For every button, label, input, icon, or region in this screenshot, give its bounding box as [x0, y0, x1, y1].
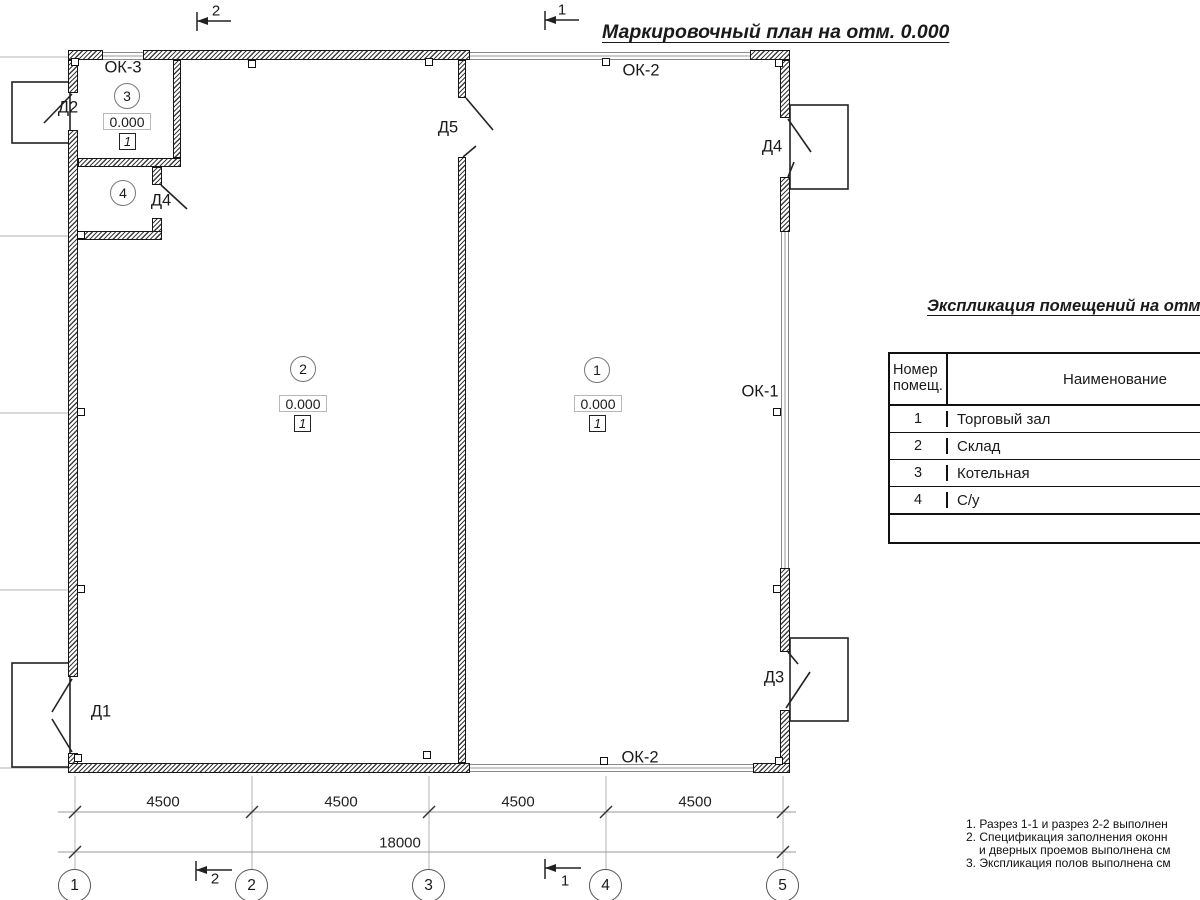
drawing-sheet: Маркировочный план на отм. 0.000 Эксплик… — [0, 0, 1200, 900]
schedule-row: 2 Склад — [890, 433, 1200, 460]
section-number-top-right: 1 — [558, 2, 566, 19]
wall-right-a — [780, 60, 790, 118]
dimension-label: 4500 — [501, 794, 534, 811]
grid-marker — [773, 585, 781, 593]
note-line-2-continued: и дверных проемов выполнена см — [979, 843, 1170, 857]
wall-top-main — [143, 50, 470, 60]
window-label-ok2-bottom: ОК-2 — [621, 749, 658, 768]
grid-marker — [600, 757, 608, 765]
room-number-3: 3 — [114, 83, 140, 109]
door-label-d4-entrance: Д4 — [762, 138, 782, 157]
schedule-row-name: Склад — [948, 438, 1200, 455]
section-number-bottom-right: 1 — [561, 873, 569, 890]
room-schedule-table: Номер помещ. Наименование 1 Торговый зал… — [888, 352, 1200, 544]
wall-right-c — [780, 568, 790, 652]
axis-bubble-2: 2 — [235, 869, 268, 900]
schedule-row-name: С/у — [948, 492, 1200, 509]
door-label-d2: Д2 — [58, 99, 78, 118]
floor-type-mark-room1: 1 — [589, 415, 606, 432]
axis-bubble-3: 3 — [412, 869, 445, 900]
section-number-bottom-left: 2 — [211, 871, 219, 888]
partition-room3-bottom — [78, 158, 181, 167]
window-label-ok1: ОК-1 — [741, 383, 778, 402]
plan-title: Маркировочный план на отм. 0.000 — [602, 21, 949, 44]
dimension-label: 4500 — [146, 794, 179, 811]
room-number-1: 1 — [584, 357, 610, 383]
porch-outlines — [12, 82, 848, 767]
wall-left-main — [68, 130, 78, 677]
grid-marker — [248, 60, 256, 68]
partition-room3-right — [173, 60, 181, 158]
section-mark-arrows — [196, 11, 581, 881]
grid-marker — [71, 58, 79, 66]
door-leaf-d5-lower — [463, 146, 476, 157]
door-label-d5: Д5 — [438, 119, 458, 138]
room-number-4: 4 — [110, 180, 136, 206]
partition-main-top — [458, 60, 466, 98]
grid-marker — [775, 59, 783, 67]
schedule-row-name: Котельная — [948, 465, 1200, 482]
door-leaf-d1-upper — [52, 679, 72, 712]
window-label-ok3: ОК-3 — [104, 59, 141, 78]
dimension-label: 4500 — [678, 794, 711, 811]
note-line-1: 1. Разрез 1-1 и разрез 2-2 выполнен — [966, 817, 1168, 831]
schedule-header-row: Номер помещ. Наименование — [890, 354, 1200, 406]
grid-marker — [77, 231, 85, 239]
wall-top-right-pier — [750, 50, 790, 60]
grid-marker — [77, 408, 85, 416]
door-label-d1: Д1 — [91, 703, 111, 722]
schedule-row: 1 Торговый зал — [890, 406, 1200, 433]
grid-marker — [74, 754, 82, 762]
schedule-col-number-header-line1: Номер — [893, 363, 946, 379]
schedule-col-number-header: Номер помещ. — [890, 354, 948, 404]
axis-extension-lines — [75, 776, 783, 871]
door-leaf-d5-upper — [466, 98, 493, 130]
window-label-ok2-top: ОК-2 — [622, 62, 659, 81]
axis-bubble-5: 5 — [766, 869, 799, 900]
schedule-title: Экспликация помещений на отм. 0.000 — [927, 297, 1200, 316]
note-line-2: 2. Спецификация заполнения оконн — [966, 830, 1167, 844]
grid-marker — [602, 58, 610, 66]
grid-axis-stubs — [0, 57, 68, 768]
grid-marker — [773, 408, 781, 416]
floor-type-mark-room2: 1 — [294, 415, 311, 432]
grid-marker — [775, 757, 783, 765]
wall-right-b — [780, 177, 790, 232]
elevation-mark-room3: 0.000 — [103, 113, 151, 130]
room-number-2: 2 — [290, 356, 316, 382]
dimension-lines — [58, 812, 796, 852]
schedule-col-name-header: Наименование — [948, 354, 1200, 404]
grid-marker — [77, 585, 85, 593]
elevation-mark-room1: 0.000 — [574, 395, 622, 412]
schedule-row-number: 4 — [890, 492, 948, 508]
axis-bubble-1: 1 — [58, 869, 91, 900]
door-leaf-d4-lower — [788, 162, 794, 177]
section-number-top-left: 2 — [212, 3, 220, 20]
schedule-empty-row — [890, 515, 1200, 542]
wall-bottom-right-pier — [753, 763, 790, 773]
window-band-ok2-top — [470, 52, 750, 60]
schedule-row-number: 3 — [890, 465, 948, 481]
schedule-row-name: Торговый зал — [948, 411, 1200, 428]
grid-marker — [425, 58, 433, 66]
elevation-mark-room2: 0.000 — [279, 395, 327, 412]
wall-bottom-left — [68, 763, 470, 773]
schedule-row-number: 2 — [890, 438, 948, 454]
door-leaf-d4-upper — [788, 119, 811, 152]
grid-marker — [423, 751, 431, 759]
partition-wc-jamb-top — [152, 167, 162, 185]
door-label-d4-wc: Д4 — [151, 192, 171, 211]
dimension-total-label: 18000 — [379, 835, 421, 852]
axis-bubble-4: 4 — [589, 869, 622, 900]
note-line-3: 3. Экспликация полов выполнена см — [966, 856, 1171, 870]
floor-type-mark-room3: 1 — [119, 133, 136, 150]
schedule-row-number: 1 — [890, 411, 948, 427]
partition-main — [458, 157, 466, 763]
schedule-col-number-header-line2: помещ. — [893, 379, 946, 395]
schedule-row: 4 С/у — [890, 487, 1200, 515]
door-label-d3: Д3 — [764, 669, 784, 688]
schedule-row: 3 Котельная — [890, 460, 1200, 487]
window-band-ok2-bottom — [470, 764, 753, 772]
door-leaf-d1-lower — [52, 719, 72, 752]
partition-wc-bottom — [78, 231, 162, 240]
window-band-ok1 — [781, 232, 789, 568]
dimension-label: 4500 — [324, 794, 357, 811]
